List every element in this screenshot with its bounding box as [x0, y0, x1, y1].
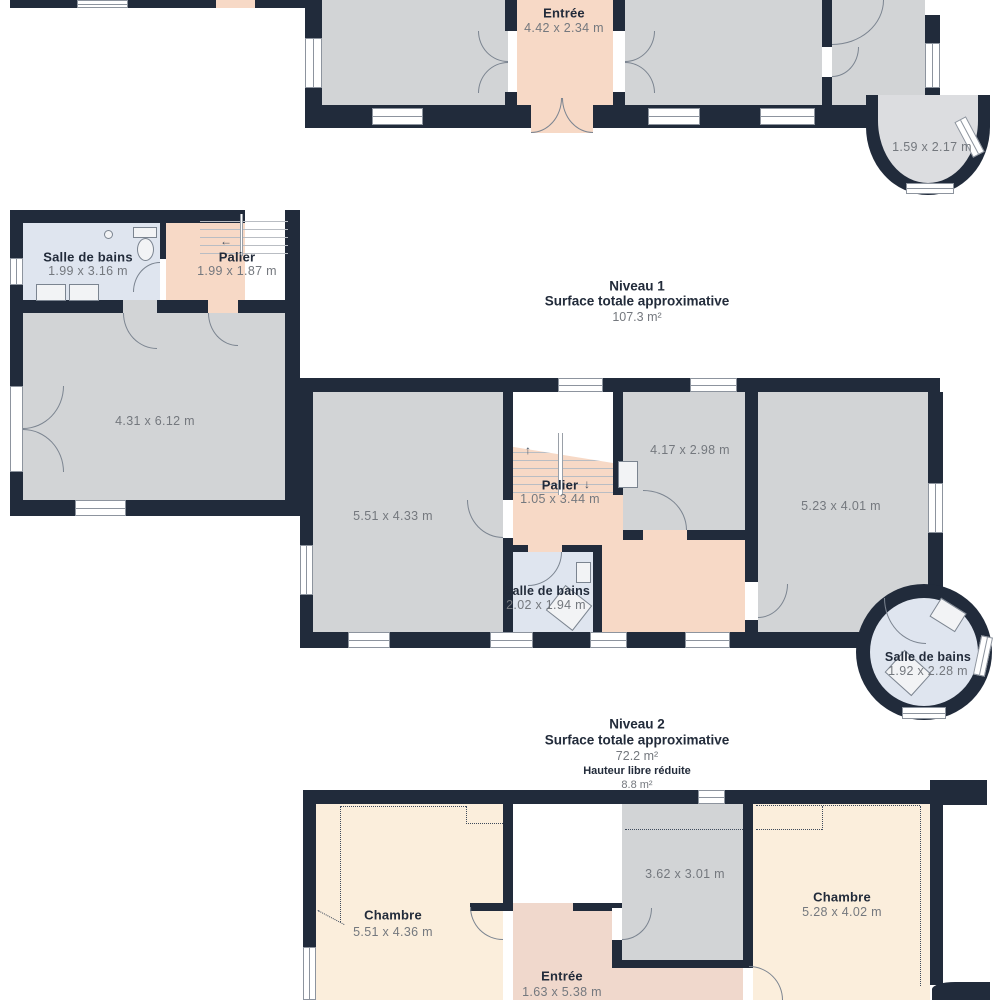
wall — [303, 790, 316, 947]
room-label: Chambre — [364, 909, 422, 922]
window — [490, 632, 533, 648]
stair-arrow-left: ← — [220, 234, 232, 248]
door-gap — [528, 545, 562, 552]
room-dims: 1.92 x 2.28 m — [888, 665, 968, 678]
wall — [928, 392, 943, 483]
door-gap — [216, 0, 255, 8]
sink — [36, 284, 66, 301]
room-label: Chambre — [813, 891, 871, 904]
stairwell-void — [513, 803, 612, 903]
wall — [612, 903, 622, 908]
level1-area: 107.3 m² — [612, 310, 661, 324]
wall — [822, 0, 832, 47]
window — [303, 947, 316, 1000]
wall — [300, 378, 940, 392]
room-dims: 3.62 x 3.01 m — [645, 868, 725, 881]
room-dims: 5.51 x 4.33 m — [353, 510, 433, 523]
window — [590, 632, 627, 648]
room-dims: 4.31 x 6.12 m — [115, 415, 195, 428]
room-dims: 4.42 x 2.34 m — [524, 22, 604, 35]
reduced-height-line — [822, 806, 823, 830]
room-chambre-left-floor — [316, 804, 503, 1000]
window — [77, 0, 128, 8]
room-label: Salle de bains — [885, 651, 971, 664]
window — [690, 378, 737, 392]
room-dims: 5.23 x 4.01 m — [801, 500, 881, 513]
wall — [745, 392, 758, 582]
reduced-height-line — [340, 807, 341, 922]
reduced-height-line — [920, 806, 921, 986]
window — [305, 38, 322, 88]
level2-title: Niveau 2 — [609, 717, 665, 732]
room-dims: 1.63 x 5.38 m — [522, 986, 602, 999]
room-dims: 5.51 x 4.36 m — [353, 926, 433, 939]
window — [75, 500, 126, 516]
level2-area: 72.2 m² — [616, 749, 658, 763]
wall — [503, 790, 513, 905]
room-label: Palier — [542, 479, 579, 492]
wall — [613, 0, 625, 31]
toilet-tank — [133, 227, 157, 238]
window — [698, 790, 725, 804]
wall — [503, 392, 513, 500]
room-dims: 4.17 x 2.98 m — [650, 444, 730, 457]
window — [372, 108, 423, 125]
level1-subtitle: Surface totale approximative — [545, 294, 730, 309]
wall — [932, 982, 990, 1000]
reduced-height-line — [466, 823, 503, 824]
wall — [743, 790, 753, 968]
reduced-height-line — [756, 805, 920, 806]
room-362-floor — [622, 803, 743, 960]
reduced-height-line — [625, 829, 743, 830]
window — [925, 43, 940, 88]
room-label: Salle de bains — [504, 585, 590, 598]
room-dims: 2.02 x 1.94 m — [506, 599, 586, 612]
sink — [69, 284, 99, 301]
stair-arrow-down: ↓ — [584, 477, 590, 491]
window — [648, 108, 700, 125]
wall — [822, 77, 832, 105]
wall — [505, 0, 517, 31]
reduced-height-line — [466, 806, 467, 824]
window — [558, 378, 603, 392]
reduced-height-line — [340, 806, 466, 807]
wall — [612, 960, 743, 968]
french-door-recess — [10, 386, 23, 472]
window — [348, 632, 390, 648]
room-label: Palier — [219, 251, 256, 264]
entree2-extension — [612, 968, 743, 1000]
wall — [593, 545, 602, 632]
floorplan-canvas: Entrée 4.42 x 2.34 m 1.59 x 2.17 m Nivea… — [0, 0, 1000, 1000]
wall — [160, 223, 166, 259]
room-label: Entrée — [543, 7, 585, 20]
room-dims: 1.05 x 3.44 m — [520, 493, 600, 506]
room-label: Entrée — [541, 970, 583, 983]
room-dims: 1.59 x 2.17 m — [892, 141, 972, 154]
closet — [618, 461, 638, 488]
wall — [300, 378, 313, 648]
wall — [930, 795, 943, 985]
room-dims: 1.99 x 3.16 m — [48, 265, 128, 278]
wall — [925, 15, 940, 43]
window — [10, 258, 23, 285]
wall — [10, 500, 300, 516]
wall — [305, 0, 322, 38]
wall — [10, 0, 310, 8]
reduced-height-line — [756, 829, 822, 830]
door-gap — [208, 300, 238, 313]
room-dims: 1.99 x 1.87 m — [197, 265, 277, 278]
wall — [573, 903, 612, 911]
room-dims: 5.28 x 4.02 m — [802, 906, 882, 919]
window — [928, 483, 943, 533]
toilet-bowl — [137, 238, 154, 261]
corridor-floor — [602, 540, 745, 632]
wall — [505, 92, 517, 105]
room-label: Salle de bains — [43, 251, 133, 264]
stair-arrow-up: ↑ — [525, 443, 531, 457]
level2-subtitle: Surface totale approximative — [545, 733, 730, 748]
window — [300, 545, 313, 595]
faucet — [104, 230, 113, 239]
window — [906, 183, 954, 194]
level2-note: Hauteur libre réduite — [583, 765, 691, 777]
window — [760, 108, 815, 125]
window — [685, 632, 730, 648]
window — [902, 707, 946, 719]
wall — [613, 92, 625, 105]
door-gap — [123, 300, 157, 313]
sink — [576, 562, 591, 583]
wall — [303, 790, 943, 804]
level1-title: Niveau 1 — [609, 279, 665, 294]
door-gap — [643, 530, 687, 540]
